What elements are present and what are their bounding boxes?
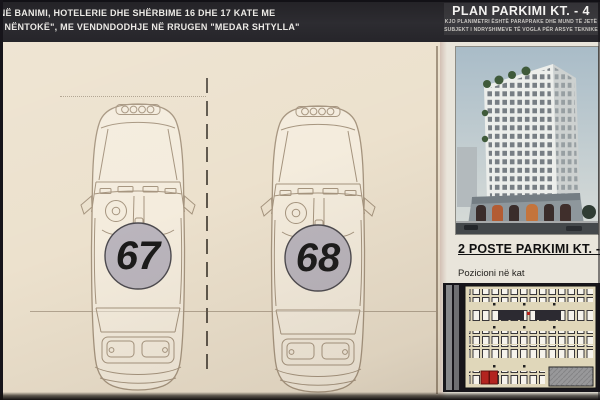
plan-disclaimer-line1: KJO PLANIMETRI ËSHTË PARAPRAKE DHE MUND … bbox=[444, 19, 598, 26]
spot-number-badge: 67 bbox=[105, 223, 171, 289]
drawing-frame-line bbox=[436, 46, 438, 394]
plan-title: PLAN PARKIMI KT. - 4 bbox=[444, 4, 598, 18]
parking-space-divider-line bbox=[206, 78, 208, 374]
spot-number: 68 bbox=[296, 236, 341, 280]
right-mirror bbox=[184, 196, 195, 214]
side-panel: 2 POSTE PARKIMI KT. - Pozicioni në kat bbox=[440, 42, 600, 400]
project-description-line1: INË BANIMI, HOTELERIE DHE SHËRBIME 16 DH… bbox=[0, 6, 436, 20]
top-banner: INË BANIMI, HOTELERIE DHE SHËRBIME 16 DH… bbox=[0, 0, 600, 42]
tower bbox=[484, 64, 580, 201]
floor-plan bbox=[443, 283, 600, 392]
highlighted-spots-icon bbox=[481, 371, 498, 384]
parking-spot-67: 67 bbox=[78, 98, 198, 393]
building-rendering bbox=[456, 47, 598, 234]
project-description: INË BANIMI, HOTELERIE DHE SHËRBIME 16 DH… bbox=[0, 6, 436, 34]
photo-edge-left bbox=[0, 0, 3, 400]
floor-plan-image bbox=[443, 283, 600, 392]
podium bbox=[468, 193, 584, 225]
street-tree bbox=[582, 205, 596, 219]
plan-disclaimer-line2: SUBJEKT I NDRYSHIMEVE TË VOGLA PËR ARSYE… bbox=[444, 27, 598, 34]
building-rendering-image bbox=[455, 46, 599, 235]
left-mirror bbox=[81, 196, 92, 214]
floor-position-label: Pozicioni në kat bbox=[458, 268, 525, 279]
plan-title-block: PLAN PARKIMI KT. - 4 KJO PLANIMETRI ËSHT… bbox=[444, 3, 598, 35]
parking-spot-68: 68 bbox=[258, 100, 378, 395]
spot-number-badge: 68 bbox=[285, 225, 351, 291]
spot-number: 67 bbox=[116, 234, 162, 278]
road-strip bbox=[454, 285, 459, 390]
street-car bbox=[464, 225, 478, 230]
project-description-line2: T NËNTOKË", ME VENDNDODHJE NË RRUGEN "ME… bbox=[0, 20, 436, 34]
parking-plan-photo: INË BANIMI, HOTELERIE DHE SHËRBIME 16 DH… bbox=[0, 0, 600, 400]
photo-edge-top bbox=[0, 0, 600, 2]
panel-title: 2 POSTE PARKIMI KT. - bbox=[458, 242, 600, 256]
car-top-view: 67 bbox=[78, 98, 198, 393]
right-mirror bbox=[364, 198, 375, 216]
ramp-block bbox=[549, 367, 593, 386]
road-strip bbox=[446, 285, 452, 390]
left-mirror bbox=[261, 198, 272, 216]
car-top-view: 68 bbox=[258, 100, 378, 395]
photo-edge-bottom bbox=[0, 392, 600, 400]
street-car bbox=[566, 226, 582, 231]
